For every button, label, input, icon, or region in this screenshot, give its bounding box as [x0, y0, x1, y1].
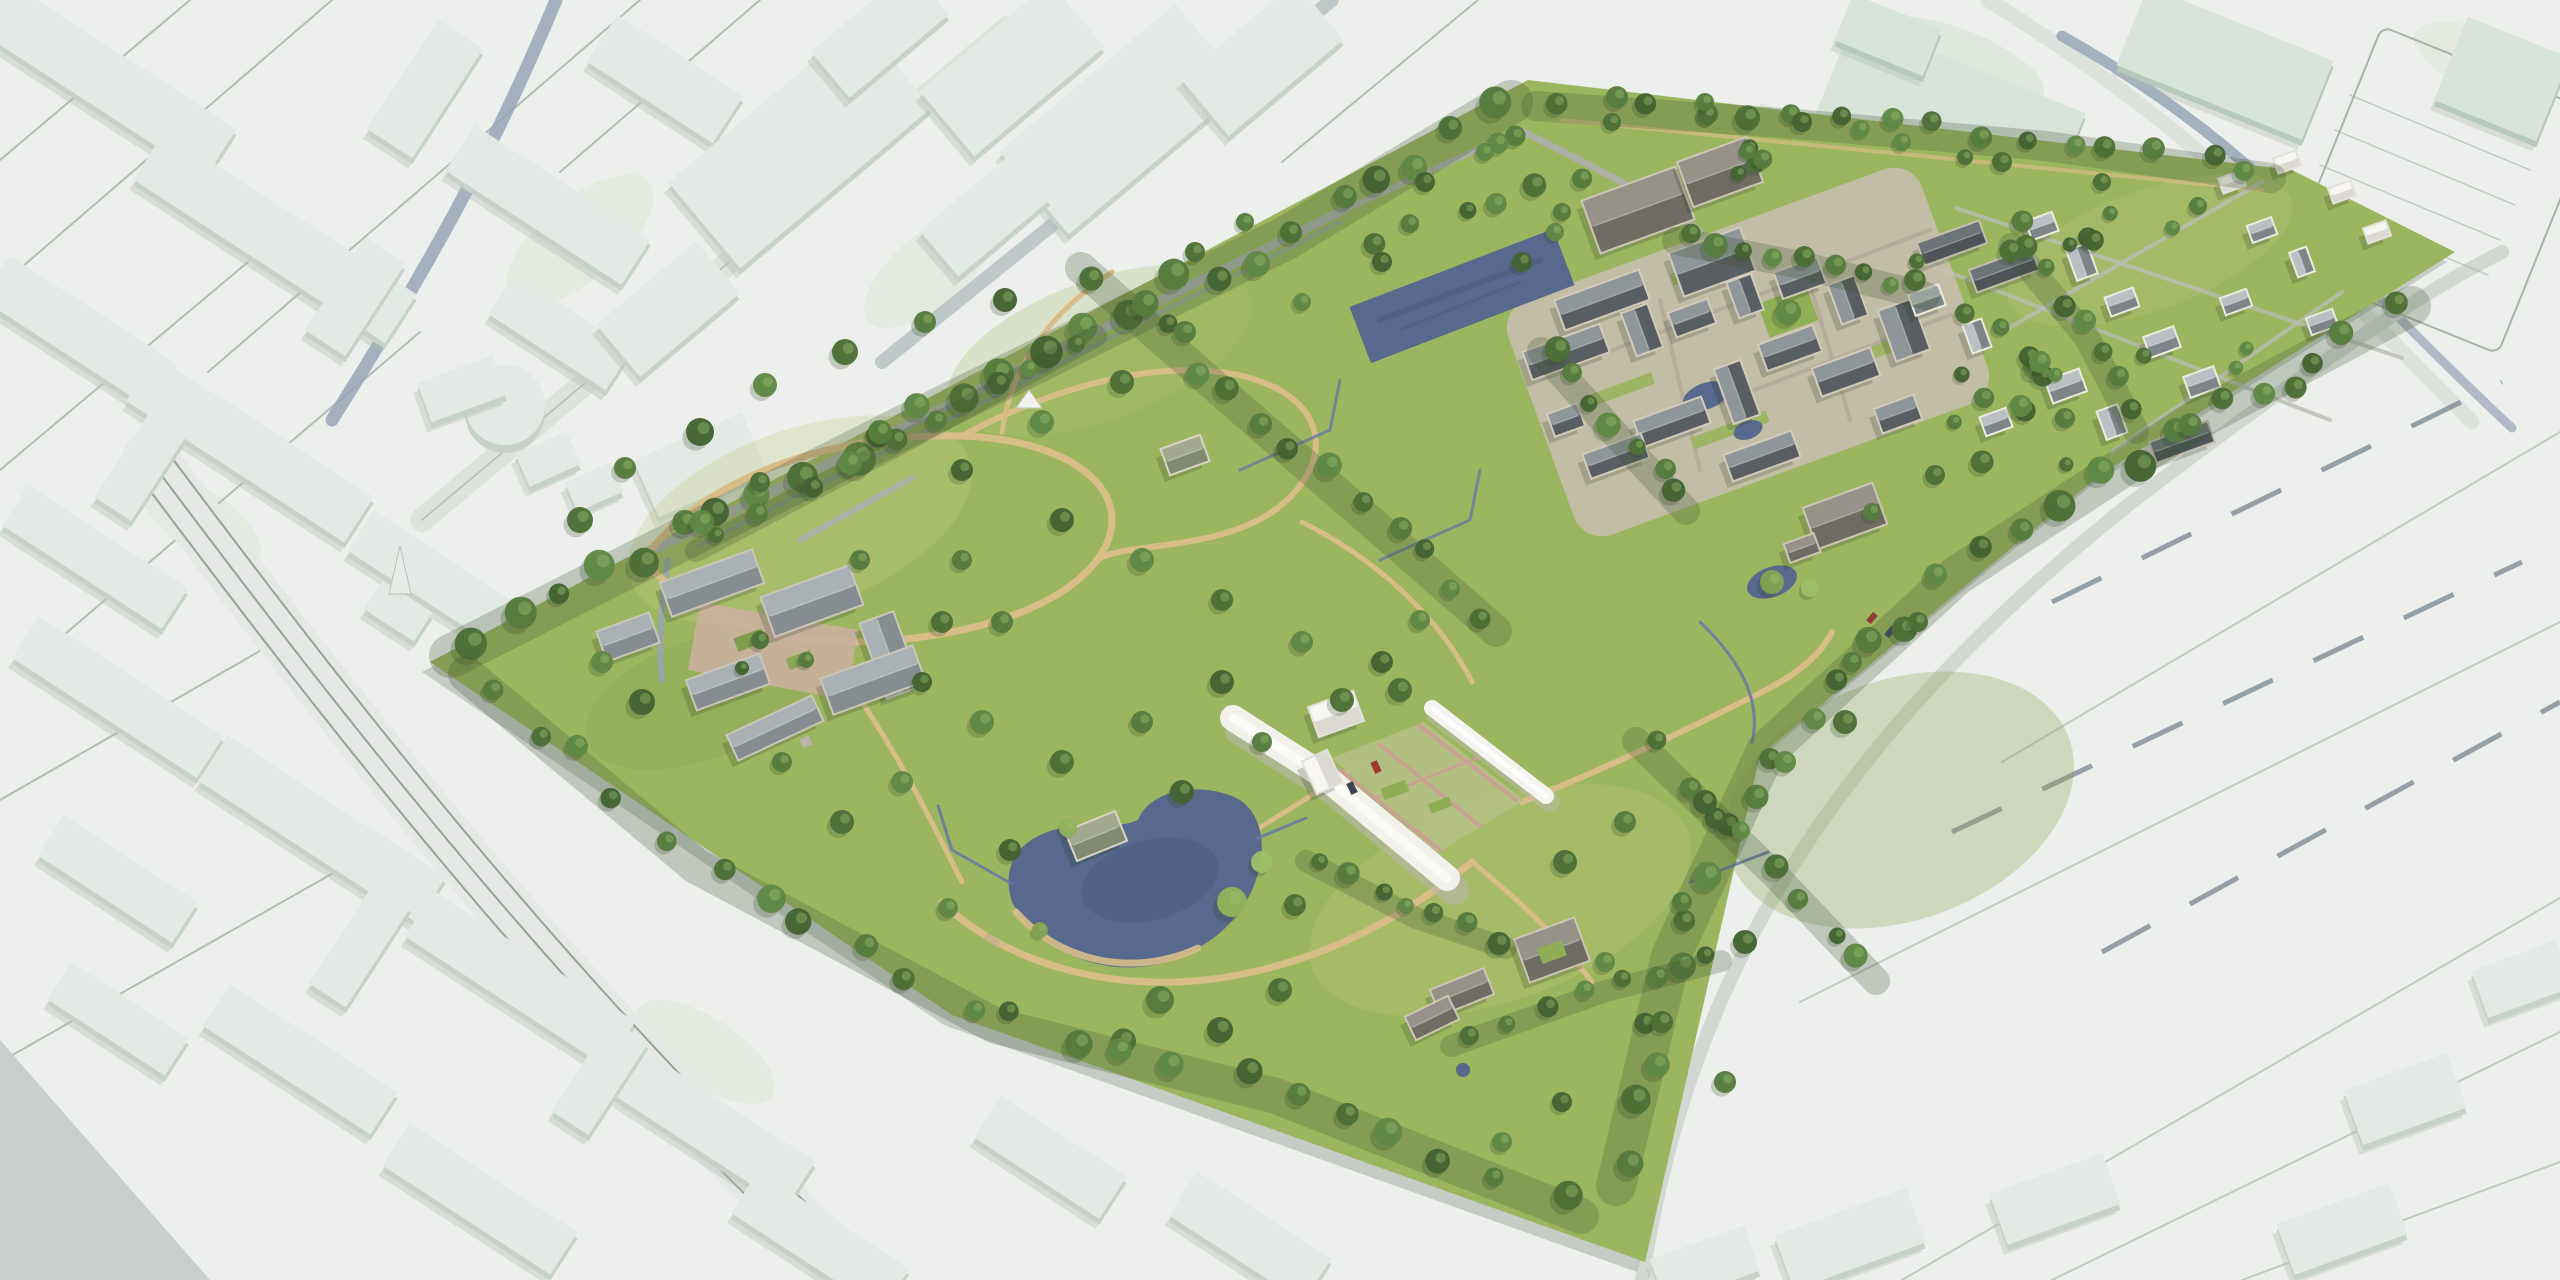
masterplan-aerial-render — [0, 0, 2560, 1280]
render-canvas — [0, 0, 2560, 1280]
